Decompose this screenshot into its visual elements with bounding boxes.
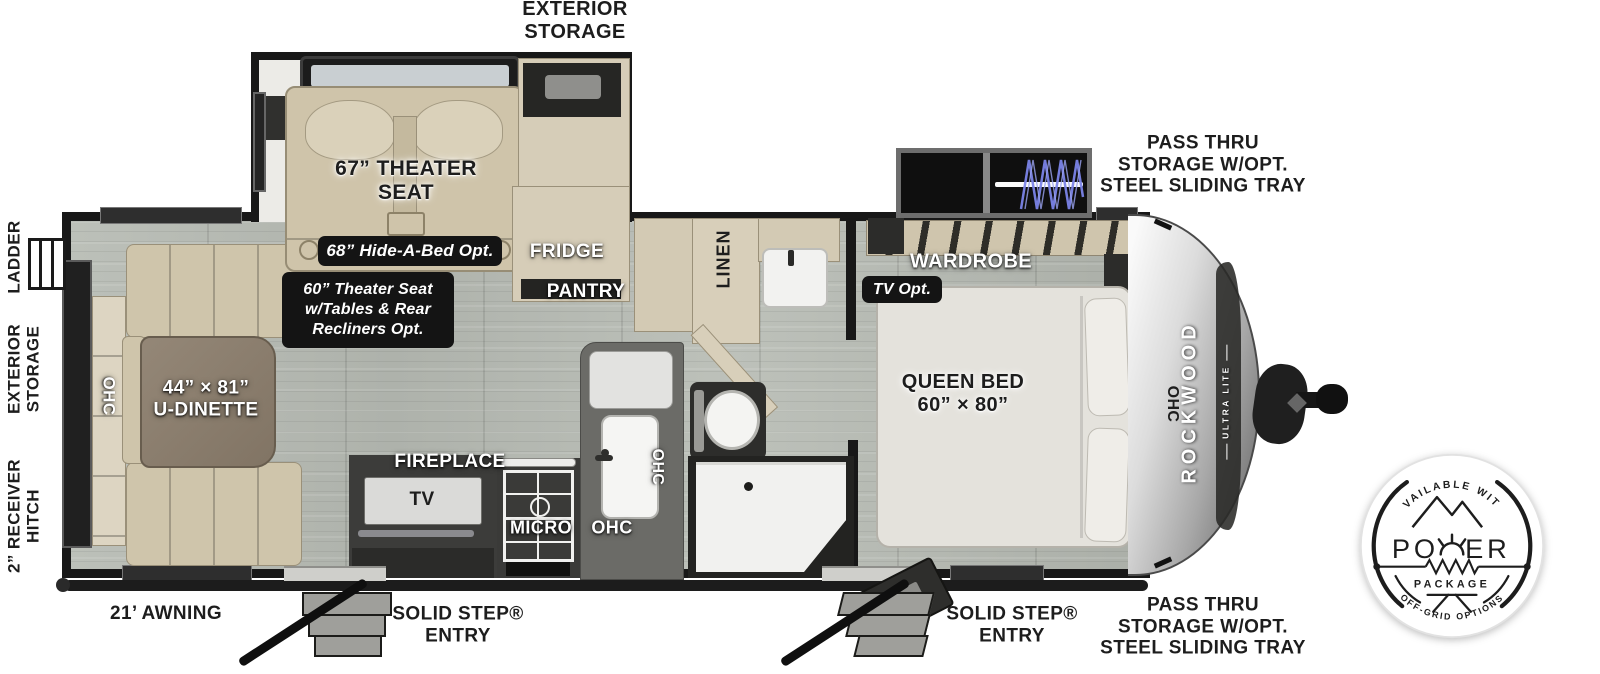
shower-drain-icon: [744, 482, 753, 491]
bedroom-bottom-window: [950, 565, 1044, 581]
kitchen-ohc-label: OHC: [591, 518, 632, 539]
badge-power-pre: PO: [1392, 533, 1439, 564]
fridge-label: FRIDGE: [530, 241, 604, 263]
awning-label: 21’ AWNING: [110, 603, 222, 625]
stove-handle: [501, 458, 576, 467]
kitchen-counter: [580, 342, 684, 580]
bath-wall-upper: [846, 218, 856, 340]
pass-thru-storage-box: [896, 148, 1092, 218]
slideout-side-window: [253, 92, 266, 192]
rear-window: [62, 260, 92, 548]
pantry-cabinet: [634, 218, 694, 332]
pantry-label: PANTRY: [547, 281, 625, 303]
entry-steps: [314, 635, 382, 657]
receiver-hitch-label: 2” RECEIVER HITCH: [5, 459, 44, 573]
ladder-label: LADDER: [4, 220, 23, 293]
shower: [688, 456, 854, 578]
dinette-bench-top: [126, 244, 302, 338]
badge-power-post: ER: [1465, 533, 1510, 564]
sofa-cupholder: [387, 212, 425, 236]
pass-thru-storage-top-label: PASS THRU STORAGE W/OPT. STEEL SLIDING T…: [1100, 133, 1306, 198]
faucet-icon: [601, 449, 609, 457]
bottom-wall-window-left: [122, 565, 252, 581]
pillow: [1084, 297, 1130, 416]
entry-door-opening: [284, 566, 386, 581]
brand-series: ULTRA LITE: [1222, 320, 1232, 483]
solid-step-entry-label-2: SOLID STEP® ENTRY: [946, 603, 1077, 646]
sliding-tray-coil-icon: [1019, 157, 1085, 211]
micro-label: MICRO: [510, 518, 572, 539]
fireplace-label: FIREPLACE: [394, 451, 505, 473]
brand-mark: ROCKWOOD ULTRA LITE: [1160, 320, 1249, 483]
sofa-back-cushion: [413, 100, 503, 160]
hide-a-bed-option-label: 68” Hide-A-Bed Opt.: [318, 236, 502, 266]
dinette-ohc-cabinet: [92, 296, 126, 546]
exterior-storage-side-label: EXTERIOR STORAGE: [5, 324, 44, 414]
top-wall-window: [100, 207, 242, 224]
sofa-bolt: [299, 240, 319, 260]
brand-name: ROCKWOOD: [1179, 320, 1202, 483]
shower-pan: [696, 464, 846, 572]
overhead-cabinet-door: [589, 351, 673, 409]
wardrobe-label: WARDROBE: [910, 251, 1032, 274]
tv-option-label: TV Opt.: [862, 276, 942, 303]
queen-bed: [876, 286, 1132, 548]
floorplan-canvas: EXTERIOR STORAGE PASS THRU STORAGE W/OPT…: [0, 0, 1600, 674]
sofa-back-cushion: [305, 100, 395, 160]
badge-package-text: PACKAGE: [1414, 578, 1490, 590]
tv-shelf: [358, 530, 474, 537]
bedroom-cabinet: [868, 218, 904, 254]
linen-label: LINEN: [714, 230, 735, 289]
fireplace-cabinet: [349, 455, 497, 578]
hitch-coupler: [1316, 384, 1348, 414]
exterior-storage-top-label: EXTERIOR STORAGE: [522, 0, 627, 44]
solid-step-entry-label-1: SOLID STEP® ENTRY: [392, 603, 523, 646]
awning-bar: [64, 580, 1148, 591]
queen-bed-label: QUEEN BED 60” × 80”: [902, 371, 1025, 417]
u-dinette-label: 44” × 81” U-DINETTE: [154, 377, 259, 420]
tv-label: TV: [409, 489, 434, 511]
vanity-faucet-icon: [788, 250, 794, 266]
dinette-bench-bottom: [126, 462, 302, 566]
kitchen-ohc-vertical-label: OHC: [648, 449, 666, 486]
vanity-sink: [762, 248, 828, 308]
pillow: [1084, 427, 1130, 542]
theater-seat-option-label: 60” Theater Seat w/Tables & Rear Recline…: [282, 272, 454, 348]
awning-end-cap: [56, 578, 70, 592]
entry-steps: [308, 614, 386, 637]
stove-icon: [503, 470, 574, 562]
toilet: [690, 382, 766, 460]
ladder-icon: [28, 238, 66, 290]
theater-seat-label: 67” THEATER SEAT: [335, 157, 477, 205]
power-package-badge: AVAILABLE WITH PO ER PACKAGE OFF-GRID OP…: [1358, 452, 1546, 640]
entry-steps: [853, 635, 928, 657]
pass-thru-storage-bottom-label: PASS THRU STORAGE W/OPT. STEEL SLIDING T…: [1100, 595, 1306, 660]
dinette-ohc-label: OHC: [99, 377, 118, 416]
